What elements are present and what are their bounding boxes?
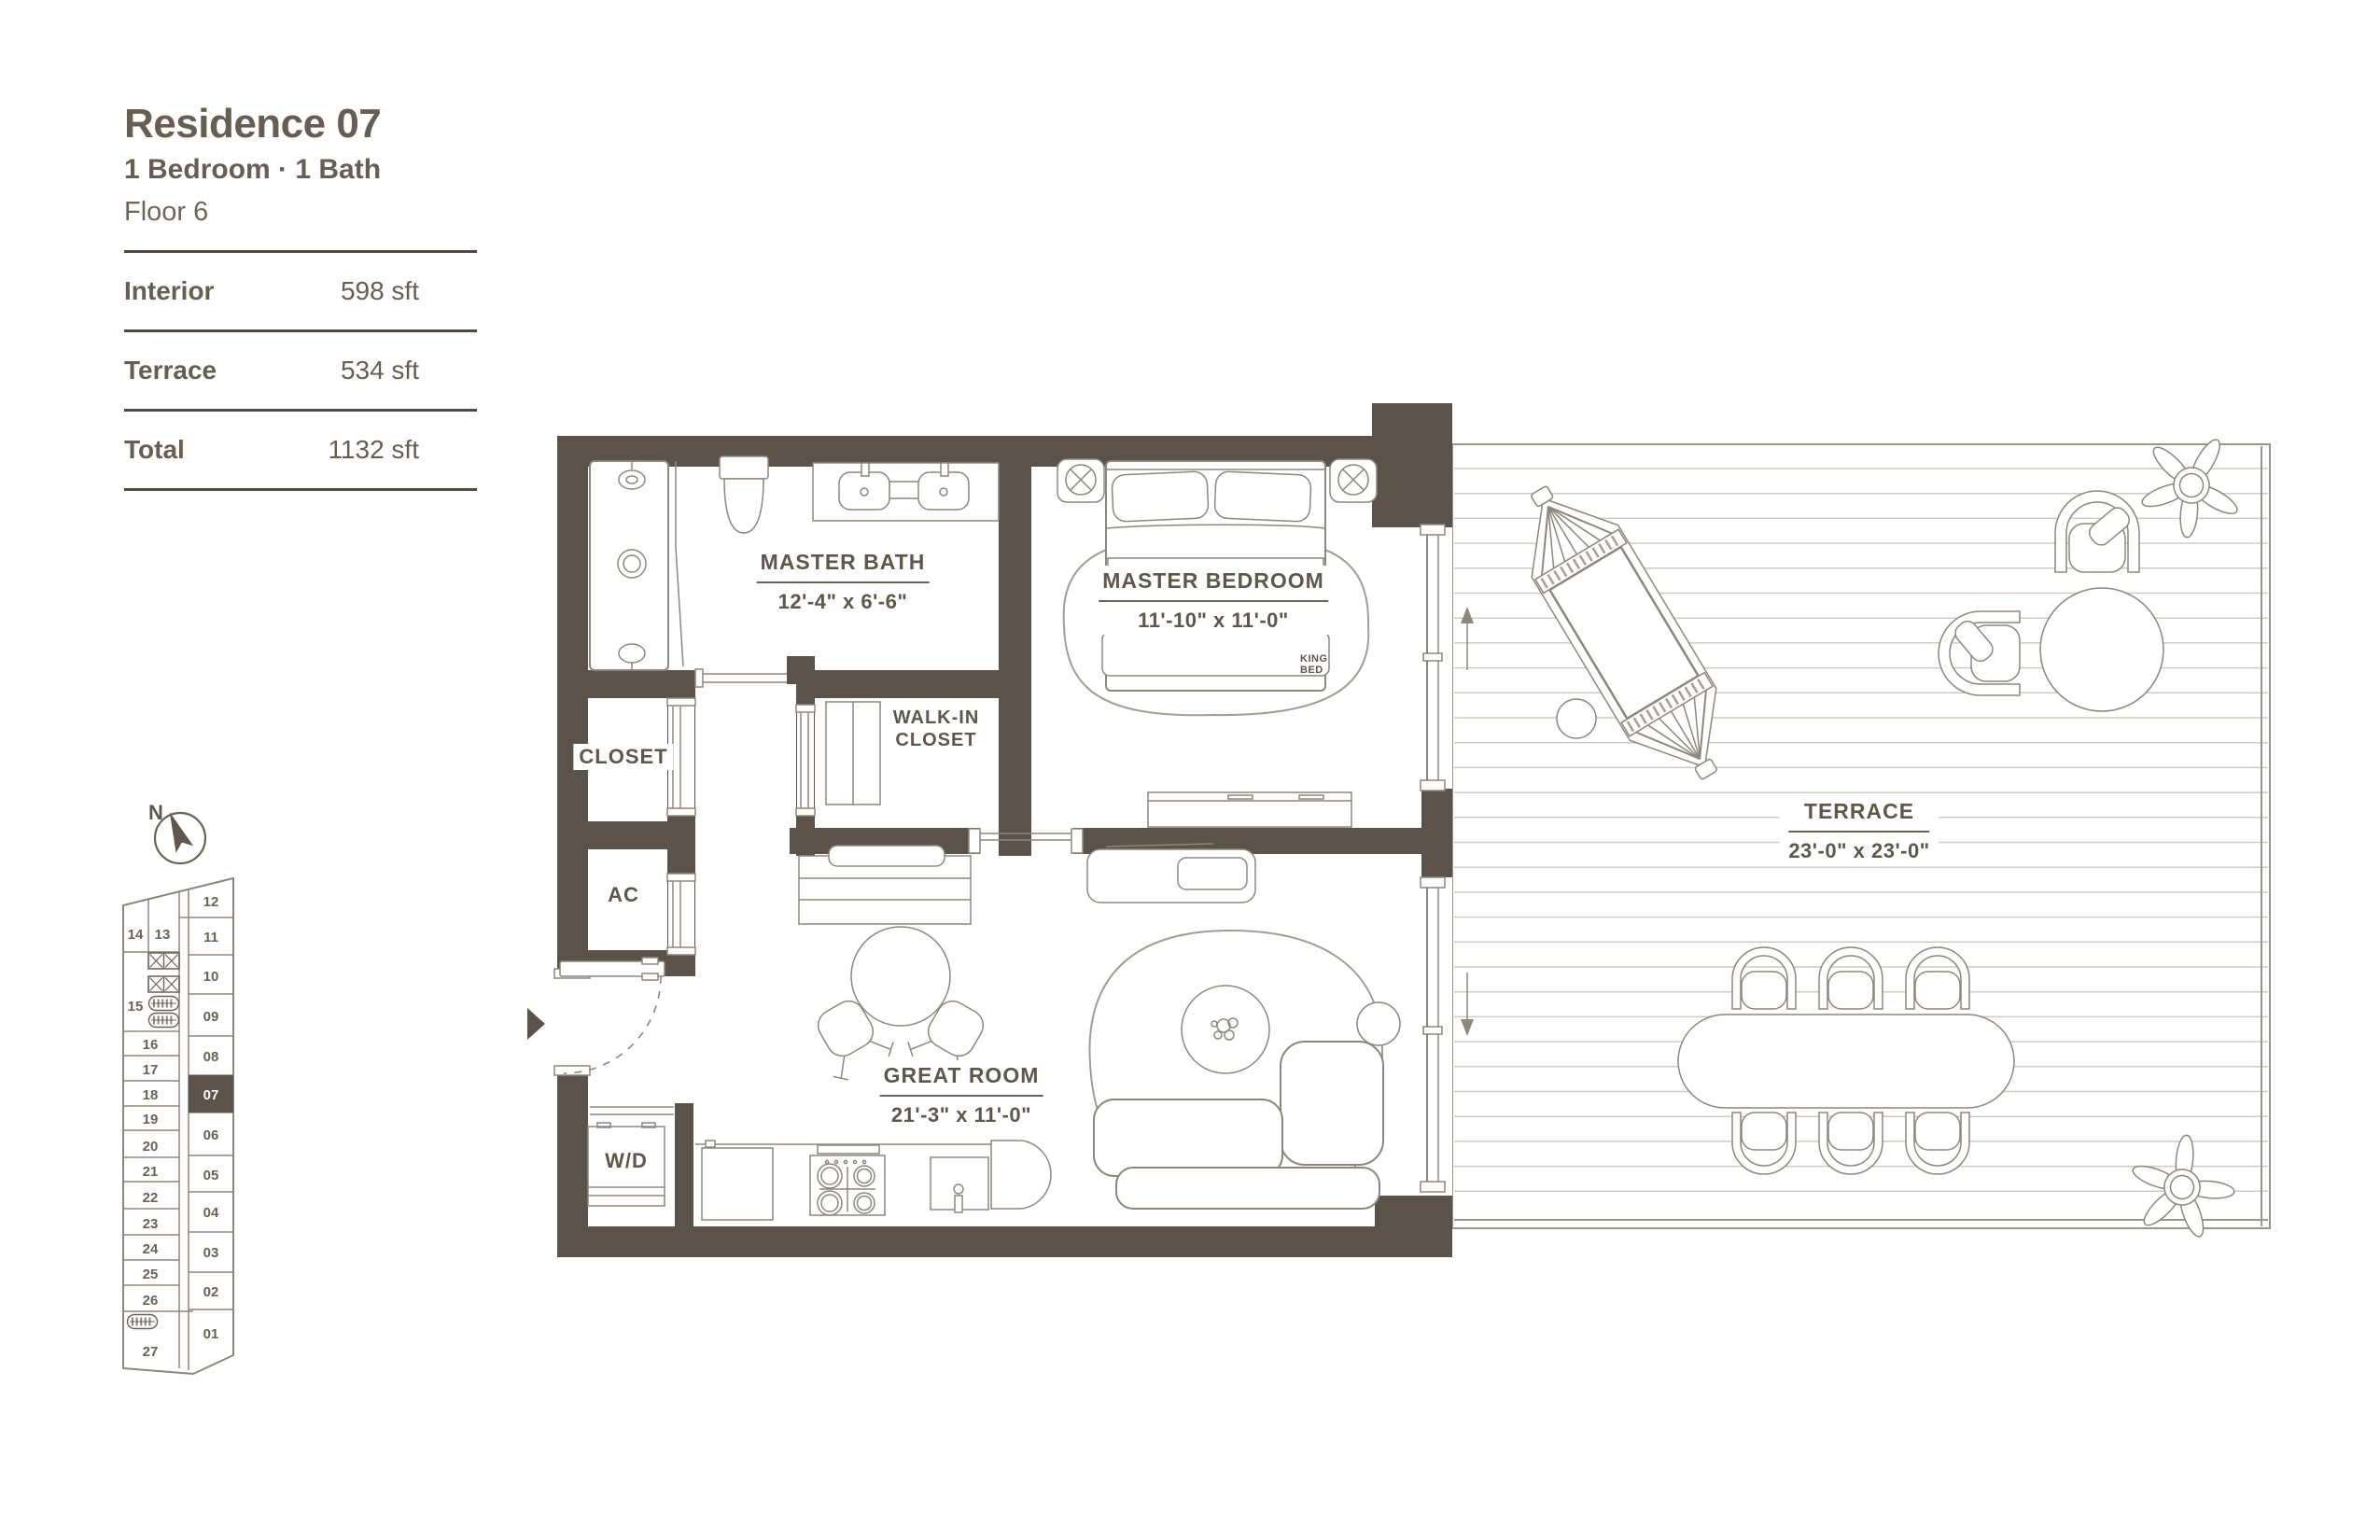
svg-text:05: 05 — [203, 1168, 219, 1183]
svg-text:23: 23 — [143, 1216, 159, 1232]
room-label-walk-in-closet: WALK-IN CLOSET — [888, 706, 986, 752]
room-label-terrace: TERRACE 23'-0" x 23'-0" — [1779, 796, 1939, 865]
svg-text:25: 25 — [143, 1267, 159, 1282]
stove — [810, 1155, 885, 1215]
svg-text:04: 04 — [203, 1205, 219, 1221]
lounge-chair — [2055, 491, 2139, 572]
area-table: Interior 598 sft Terrace 534 sft Total 1… — [124, 250, 477, 491]
svg-text:11: 11 — [203, 930, 218, 945]
svg-text:12: 12 — [203, 894, 219, 910]
svg-text:27: 27 — [143, 1344, 159, 1360]
svg-text:15: 15 — [128, 999, 144, 1015]
svg-text:16: 16 — [143, 1037, 159, 1053]
stairs-icon — [128, 1315, 158, 1329]
svg-text:09: 09 — [203, 1009, 219, 1025]
room-label-great-room: GREAT ROOM 21'-3" x 11'-0" — [871, 1060, 1053, 1129]
unit-floor: Floor 6 — [124, 197, 477, 228]
area-label: Interior — [124, 276, 214, 306]
hammock — [1495, 465, 1753, 802]
svg-text:14: 14 — [128, 927, 144, 943]
svg-text:20: 20 — [143, 1139, 159, 1155]
unit-info-panel: Residence 07 1 Bedroom · 1 Bath Floor 6 … — [124, 103, 477, 491]
stairs-icon — [149, 1014, 179, 1028]
svg-text:22: 22 — [143, 1190, 159, 1206]
door-swing-arrow-down-icon — [1461, 973, 1474, 1036]
svg-text:01: 01 — [203, 1326, 219, 1342]
area-label: Terrace — [124, 356, 217, 385]
svg-text:18: 18 — [143, 1087, 159, 1103]
pouf — [1182, 986, 1269, 1073]
room-label-wd: W/D — [599, 1148, 653, 1174]
svg-text:06: 06 — [203, 1127, 219, 1143]
toilet — [720, 456, 768, 479]
table-row: Total 1132 sft — [124, 409, 477, 491]
stairs-icon — [149, 997, 179, 1011]
compass: N — [148, 801, 205, 863]
dining-table — [851, 927, 950, 1026]
svg-text:02: 02 — [203, 1284, 219, 1300]
lounge-chair — [1939, 611, 2020, 695]
svg-text:21: 21 — [143, 1164, 159, 1180]
room-label-master-bath: MASTER BATH 12'-4" x 6'-6" — [748, 547, 939, 616]
dresser — [1148, 792, 1351, 827]
elevator-icon — [148, 953, 179, 969]
kitchen-sink — [931, 1157, 988, 1212]
floorplan-sheet: N — [0, 0, 2380, 1540]
plant-icon — [2121, 1124, 2246, 1252]
fridge — [702, 1148, 773, 1220]
svg-text:08: 08 — [203, 1049, 219, 1065]
counter-peninsula — [991, 1141, 1051, 1209]
svg-text:03: 03 — [203, 1245, 219, 1261]
table-row: Terrace 534 sft — [124, 329, 477, 409]
area-value: 1132 sft — [328, 435, 477, 465]
room-label-ac: AC — [602, 882, 645, 908]
room-label-master-bedroom: MASTER BEDROOM 11'-10" x 11'-0" — [1089, 566, 1337, 635]
svg-text:13: 13 — [155, 927, 171, 943]
terrace-dining-set — [1678, 947, 2014, 1174]
area-label: Total — [124, 435, 185, 465]
unit-subtitle: 1 Bedroom · 1 Bath — [124, 154, 477, 186]
svg-text:19: 19 — [143, 1112, 159, 1127]
svg-text:17: 17 — [143, 1062, 159, 1078]
range-hood — [818, 1145, 879, 1154]
building-keyplan: 12 11 10 09 08 07 06 05 04 03 02 01 14 1… — [123, 878, 233, 1374]
svg-text:07: 07 — [203, 1087, 219, 1103]
svg-text:26: 26 — [143, 1293, 159, 1309]
room-label-closet: CLOSET — [573, 744, 673, 770]
svg-text:10: 10 — [203, 969, 219, 985]
svg-text:24: 24 — [143, 1241, 159, 1257]
page-title: Residence 07 — [124, 103, 477, 146]
terrace-round-table — [2040, 588, 2163, 711]
terrace-side-table — [1557, 699, 1596, 738]
entry-marker-icon — [527, 1008, 545, 1040]
area-value: 534 sft — [341, 356, 477, 385]
table-row: Interior 598 sft — [124, 250, 477, 329]
area-value: 598 sft — [341, 276, 477, 306]
elevator-icon — [148, 976, 179, 992]
door-swing-arrow-up-icon — [1461, 607, 1474, 670]
king-bed-label: KING BED — [1300, 653, 1328, 676]
